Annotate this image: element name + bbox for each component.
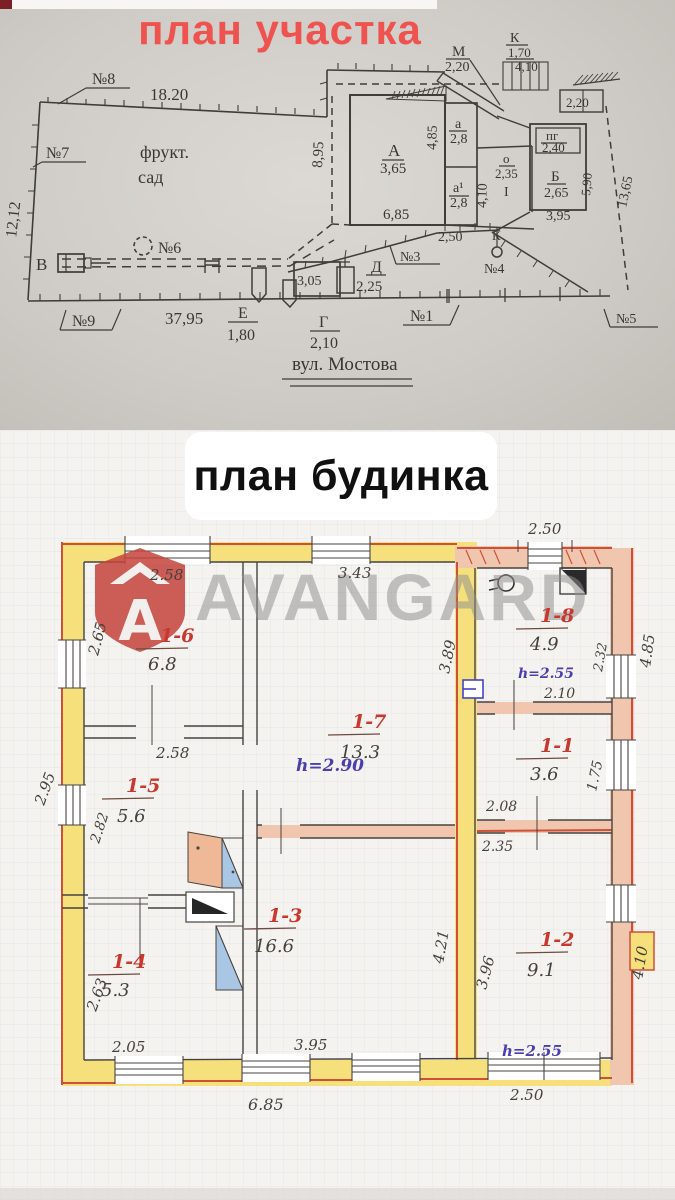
label: 5.3 xyxy=(101,980,130,1001)
site-plan-labels: №818.20№7фрукт.сад12,12№6В37,95№9Е1,80Г2… xyxy=(3,31,636,375)
site-plan-photo: №818.20№7фрукт.сад12,12№6В37,95№9Е1,80Г2… xyxy=(0,0,675,430)
label: 2,65 xyxy=(544,186,569,201)
label: 8,95 xyxy=(310,141,327,168)
label: 1-2 xyxy=(540,929,574,951)
label: а¹ xyxy=(453,181,463,196)
label: 1-6 xyxy=(160,625,194,647)
window xyxy=(606,885,636,922)
house-plan-title: план будинка xyxy=(193,452,488,501)
label: 2,35 xyxy=(495,166,518,181)
label: 3,95 xyxy=(546,209,571,224)
label: 6.85 xyxy=(248,1095,284,1114)
label: 1-1 xyxy=(540,735,574,757)
label: вул. Мостова xyxy=(292,354,398,375)
landmark-6-circle xyxy=(134,237,152,255)
window xyxy=(58,640,86,688)
label: 12,12 xyxy=(3,201,24,239)
gate-symbol xyxy=(205,258,219,273)
label: 4,10 xyxy=(475,183,491,208)
window xyxy=(115,1056,183,1084)
label: 1-3 xyxy=(268,905,302,927)
label: 5.6 xyxy=(117,806,146,827)
listing-image: №818.20№7фрукт.сад12,12№6В37,95№9Е1,80Г2… xyxy=(0,0,675,1200)
label: №7 xyxy=(46,145,69,162)
label: 6,85 xyxy=(383,207,409,223)
label: 2.05 xyxy=(111,1038,145,1056)
label: 2.58 xyxy=(155,744,189,762)
label: 2.35 xyxy=(481,839,513,855)
label: 3,05 xyxy=(297,274,322,289)
label: 2.10 xyxy=(543,686,575,702)
label: Д xyxy=(371,259,382,276)
label: Г xyxy=(319,314,328,331)
label: 3.95 xyxy=(294,1036,327,1054)
house-title-box: план будинка xyxy=(185,432,497,520)
label: 2.50 xyxy=(527,520,562,538)
label: 2,8 xyxy=(450,196,468,211)
label: h=2.55 xyxy=(518,666,574,682)
label: I xyxy=(504,185,509,200)
label: №1 xyxy=(410,308,433,325)
label: 3,65 xyxy=(380,161,406,177)
label: 13.3 xyxy=(340,742,380,763)
label: h=2.55 xyxy=(502,1042,562,1060)
label: 2.08 xyxy=(485,799,517,815)
label: А xyxy=(388,141,401,160)
label: 4,10 xyxy=(515,59,538,74)
label: а xyxy=(455,117,462,132)
label: №3 xyxy=(400,250,420,265)
label: №4 xyxy=(484,262,504,277)
label: сад xyxy=(138,167,163,187)
label: о xyxy=(503,151,510,166)
label: фрукт. xyxy=(140,142,189,162)
label: 2.50 xyxy=(509,1086,544,1104)
watermark-text: AVANGARD xyxy=(195,560,591,634)
label: 37,95 xyxy=(165,309,203,328)
label: 1-7 xyxy=(352,711,386,733)
label: 2,20 xyxy=(566,95,589,110)
label: №5 xyxy=(616,312,636,327)
house-plan-paper: AVANGARD A 2.502.583.432.652.952.822.582… xyxy=(0,430,675,1200)
label: 2,8 xyxy=(450,132,468,147)
label: Е xyxy=(238,305,248,322)
label: 3.6 xyxy=(530,764,559,785)
door-e xyxy=(252,268,266,302)
structure-v xyxy=(58,254,84,272)
label: №9 xyxy=(72,313,95,330)
label: 6.8 xyxy=(148,654,177,675)
site-plan-svg: №818.20№7фрукт.сад12,12№6В37,95№9Е1,80Г2… xyxy=(0,0,675,430)
label: №6 xyxy=(158,240,181,257)
label: 3.43 xyxy=(338,564,371,582)
street-underline xyxy=(282,379,413,386)
label: 1-8 xyxy=(540,605,574,627)
label: 4,85 xyxy=(425,125,441,150)
window xyxy=(242,1054,310,1082)
house-plan-svg: AVANGARD A 2.502.583.432.652.952.822.582… xyxy=(0,430,675,1200)
label: 16.6 xyxy=(254,936,294,957)
label: 2,20 xyxy=(445,60,470,75)
label: 2,50 xyxy=(438,230,463,245)
label: 9.1 xyxy=(527,960,556,981)
label: 1-4 xyxy=(112,951,146,973)
label: В xyxy=(36,255,47,274)
window xyxy=(58,785,86,825)
label: 1-5 xyxy=(126,775,160,797)
label: 2.58 xyxy=(149,566,183,584)
label: 1,80 xyxy=(227,327,255,344)
label: К xyxy=(492,228,501,243)
window xyxy=(606,655,636,698)
label: 5,90 xyxy=(578,172,595,196)
label: 4.9 xyxy=(529,634,559,655)
label: 13,65 xyxy=(615,175,636,209)
label: 2,40 xyxy=(542,140,565,155)
label: 2,25 xyxy=(356,279,382,295)
label: 2,10 xyxy=(310,335,338,352)
site-plan-title: план участка xyxy=(0,6,560,54)
label: 18.20 xyxy=(150,85,188,104)
label: №8 xyxy=(92,71,115,88)
meter-icon xyxy=(463,680,483,698)
svg-text:A: A xyxy=(118,589,162,654)
label: Б xyxy=(551,169,560,185)
window xyxy=(606,740,636,790)
window xyxy=(352,1053,420,1081)
